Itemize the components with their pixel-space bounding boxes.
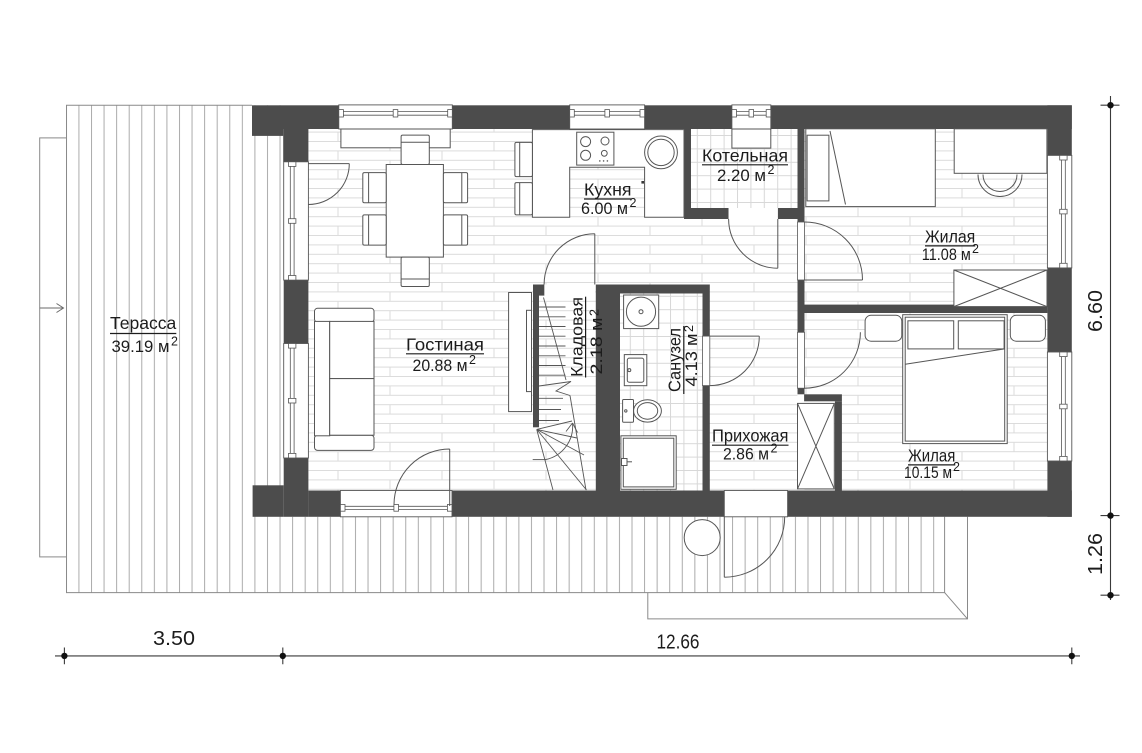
svg-text:Жилая: Жилая [925,227,975,247]
svg-text:3.50: 3.50 [153,628,195,650]
svg-text:2: 2 [682,325,696,332]
svg-text:2.20 м: 2.20 м [717,166,766,185]
svg-text:2: 2 [171,335,178,349]
svg-text:2: 2 [972,242,979,256]
svg-text:2: 2 [771,442,778,456]
svg-text:2: 2 [588,309,602,316]
svg-text:Кухня: Кухня [584,180,632,200]
svg-text:2: 2 [768,163,775,177]
svg-text:Кладовая: Кладовая [568,297,587,377]
svg-text:1.26: 1.26 [1085,533,1107,575]
svg-text:2: 2 [469,353,476,367]
svg-text:6.00 м: 6.00 м [581,199,628,218]
svg-text:39.19 м: 39.19 м [112,337,170,356]
svg-text:4.13 м: 4.13 м [682,334,701,387]
svg-text:Терасса: Терасса [110,313,177,333]
svg-text:2.18 м: 2.18 м [587,318,606,375]
svg-text:6.60: 6.60 [1085,290,1107,332]
svg-text:2: 2 [953,460,960,474]
svg-text:20.88 м: 20.88 м [413,356,468,375]
svg-text:12.66: 12.66 [657,632,700,654]
svg-text:2.86 м: 2.86 м [723,445,769,464]
svg-text:Котельная: Котельная [702,146,788,166]
svg-text:Гостиная: Гостиная [406,335,484,355]
svg-text:2: 2 [630,196,637,210]
svg-text:11.08 м: 11.08 м [922,245,971,264]
svg-text:10.15 м: 10.15 м [904,463,952,482]
